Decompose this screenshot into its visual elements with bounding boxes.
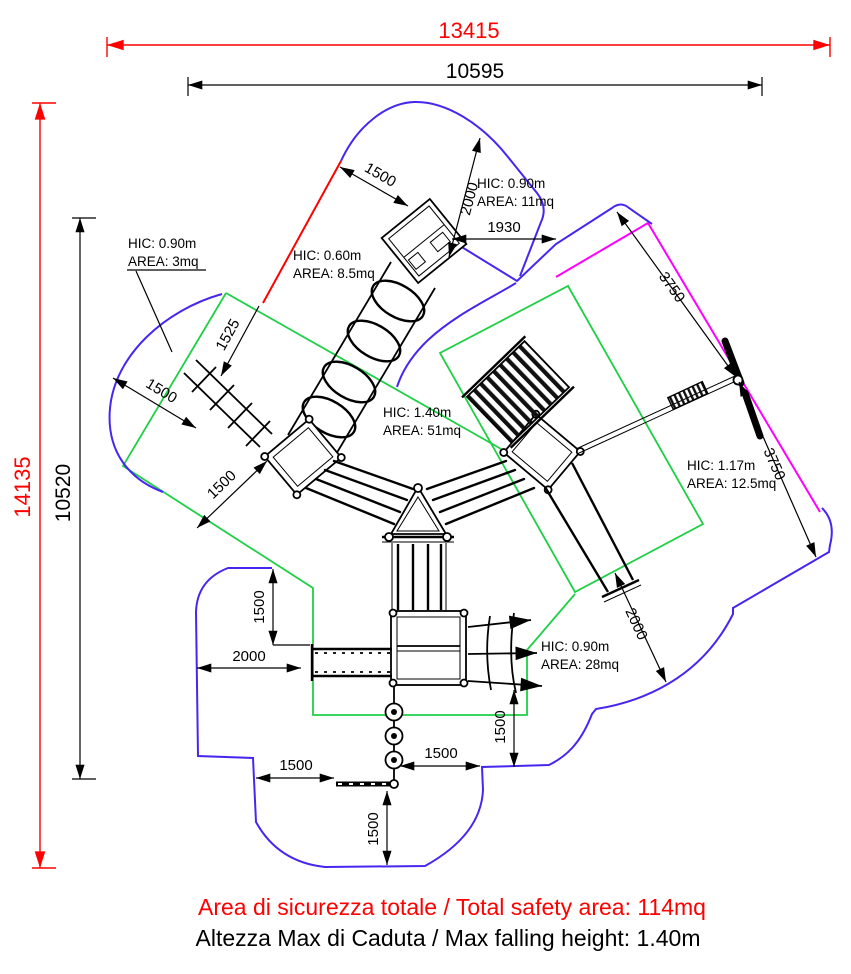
hic-label-4: HIC: 1.17m AREA: 12.5mq: [687, 458, 776, 491]
dim-inner-width-value: 10595: [446, 60, 504, 83]
dim-net-side-vertical: 1500: [492, 710, 509, 743]
dim-right-slide-exit: 2000: [621, 605, 651, 642]
dimension-outer-width: 13415: [107, 18, 830, 57]
total-safety-area-text: Area di sicurezza totale / Total safety …: [198, 894, 706, 920]
svg-text:HIC: 0.90m: HIC: 0.90m: [128, 236, 196, 251]
dimension-outer-height: 14135: [10, 103, 56, 868]
critical-edge: [263, 161, 341, 303]
dim-tube-top-width: 1500: [362, 159, 399, 190]
svg-text:AREA: 51mq: AREA: 51mq: [383, 423, 461, 438]
svg-text:AREA: 28mq: AREA: 28mq: [541, 657, 619, 672]
bridge-south: [392, 543, 446, 611]
dim-pods-bottom: 1500: [365, 812, 382, 845]
dimension-inner-height: 10520: [52, 218, 96, 779]
dim-zipline-upper: 3750: [655, 269, 688, 306]
hic-label-0: HIC: 0.90m AREA: 3mq: [127, 236, 206, 352]
svg-text:HIC: 0.90m: HIC: 0.90m: [477, 176, 545, 191]
climbing-net: [468, 613, 542, 693]
svg-text:AREA: 11mq: AREA: 11mq: [477, 194, 554, 209]
svg-text:HIC: 0.90m: HIC: 0.90m: [541, 639, 609, 654]
dim-left-bridge: 1500: [204, 467, 240, 502]
slide-left: [312, 644, 392, 681]
dim-pods-to-edge: 1500: [424, 745, 457, 762]
zipline: [576, 341, 760, 454]
hic-label-2: HIC: 0.90m AREA: 11mq: [477, 176, 554, 209]
safety-outline-notch: [452, 205, 652, 282]
slide-right: [545, 463, 641, 602]
stepping-pods: [386, 686, 403, 783]
dim-outer-width-value: 13415: [438, 18, 499, 43]
dim-tube-side: 1525: [213, 316, 244, 353]
dim-left-inset-horizontal: 2000: [232, 648, 265, 665]
svg-text:HIC: 0.60m: HIC: 0.60m: [293, 248, 361, 263]
impact-zone-main: [123, 293, 575, 715]
svg-text:HIC: 1.17m: HIC: 1.17m: [687, 458, 755, 473]
svg-text:AREA: 12.5mq: AREA: 12.5mq: [687, 476, 776, 491]
central-triangle-platform: [382, 484, 454, 542]
dim-left-inset-vertical: 1500: [251, 590, 268, 623]
platform-south: [390, 610, 468, 687]
dim-beam-to-edge: 1500: [279, 757, 312, 774]
dim-gap-top-right: 1930: [487, 219, 520, 236]
plan-drawing: 13415 14135 10595 10520 1500 2000 1930 1…: [0, 0, 851, 974]
dimension-inner-width: 10595: [188, 60, 762, 96]
svg-text:AREA: 3mq: AREA: 3mq: [128, 254, 199, 269]
ladder: [184, 360, 272, 447]
playground-safety-plan: 13415 14135 10595 10520 1500 2000 1930 1…: [0, 0, 851, 974]
impact-zone-diagonal: [226, 293, 503, 450]
balance-beam: [336, 780, 398, 788]
hic-label-3: HIC: 1.40m AREA: 51mq: [383, 405, 461, 438]
dim-inner-height-value: 10520: [52, 464, 75, 522]
impact-zone-right-rect: [440, 286, 703, 592]
hic-label-1: HIC: 0.60m AREA: 8.5mq: [293, 248, 375, 281]
max-falling-height-text: Altezza Max di Caduta / Max falling heig…: [196, 925, 701, 951]
summary-block: Area di sicurezza totale / Total safety …: [196, 894, 706, 951]
svg-text:HIC: 1.40m: HIC: 1.40m: [383, 405, 451, 420]
svg-text:AREA: 8.5mq: AREA: 8.5mq: [293, 266, 375, 281]
dim-outer-height-value: 14135: [10, 456, 35, 517]
hic-label-5: HIC: 0.90m AREA: 28mq: [541, 639, 619, 672]
